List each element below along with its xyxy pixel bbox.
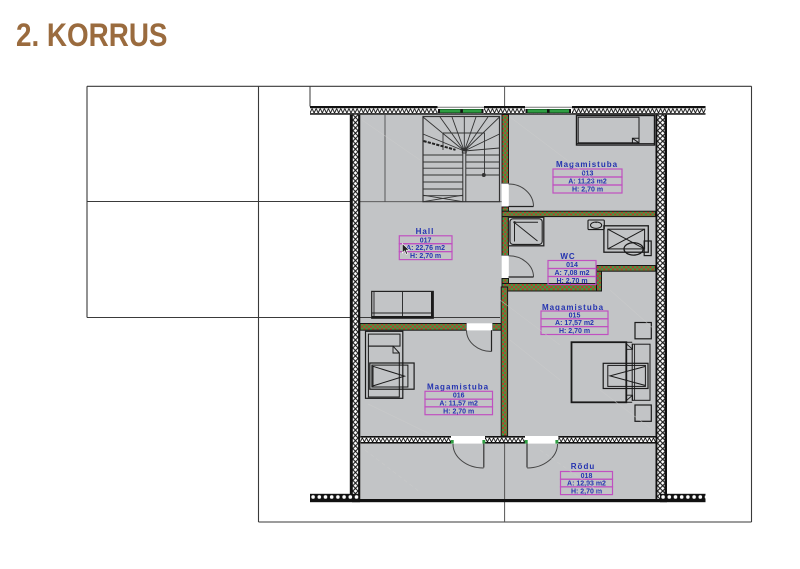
svg-text:H: 2,70 m: H: 2,70 m <box>572 187 603 194</box>
svg-text:A: 11,57 m2: A: 11,57 m2 <box>439 401 478 408</box>
svg-text:013: 013 <box>582 171 594 178</box>
svg-text:Rõdu: Rõdu <box>571 462 595 471</box>
svg-text:2. KORRUS: 2. KORRUS <box>16 16 168 53</box>
svg-text:017: 017 <box>420 237 432 244</box>
svg-text:A: 11,23 m2: A: 11,23 m2 <box>568 179 607 186</box>
svg-text:H: 2,70 m: H: 2,70 m <box>571 489 602 496</box>
svg-text:H: 2,70 m: H: 2,70 m <box>410 253 441 260</box>
svg-text:A: 7,08 m2: A: 7,08 m2 <box>554 270 589 277</box>
svg-text:A: 12,93 m2: A: 12,93 m2 <box>567 481 606 488</box>
svg-text:H: 2,70 m: H: 2,70 m <box>443 408 474 415</box>
svg-text:Magamistuba: Magamistuba <box>427 383 489 392</box>
svg-text:WC: WC <box>560 252 575 261</box>
svg-text:A: 17,57 m2: A: 17,57 m2 <box>555 320 594 327</box>
svg-text:Hall: Hall <box>416 227 435 236</box>
svg-text:016: 016 <box>453 393 465 400</box>
svg-text:Magamistuba: Magamistuba <box>556 160 618 169</box>
svg-text:H: 2,70 m: H: 2,70 m <box>559 328 590 335</box>
svg-text:018: 018 <box>581 473 593 480</box>
svg-text:A: 22,76 m2: A: 22,76 m2 <box>406 245 445 252</box>
svg-text:015: 015 <box>569 312 581 319</box>
svg-text:014: 014 <box>566 262 578 269</box>
svg-text:H: 2,70 m: H: 2,70 m <box>556 278 587 285</box>
